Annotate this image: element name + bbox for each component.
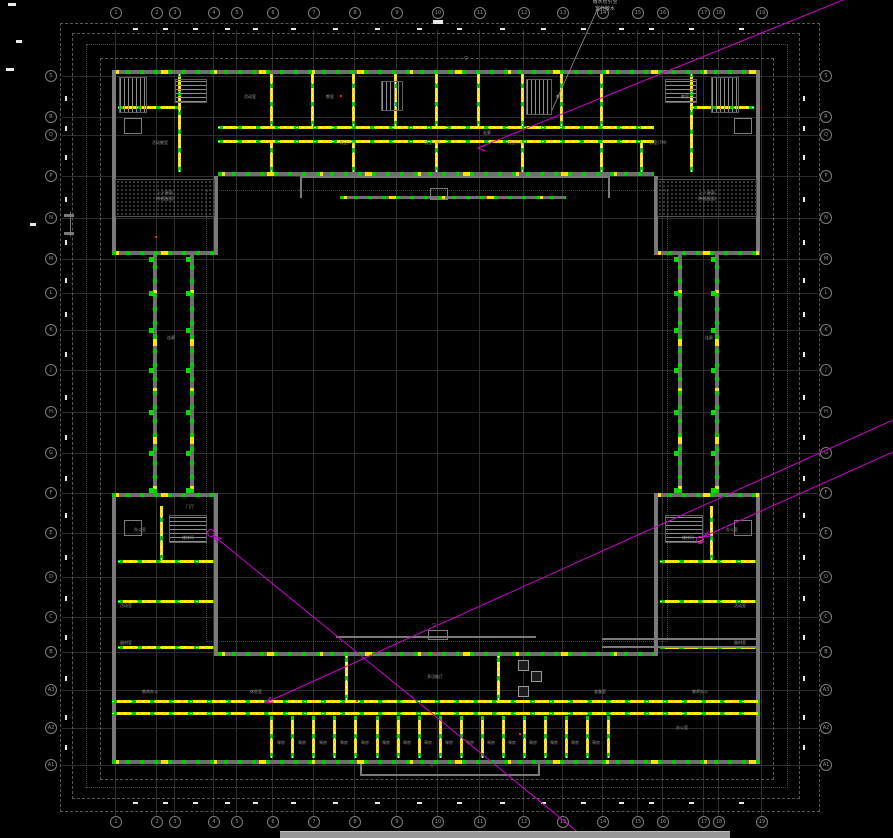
room-label: 连廊 [705,336,713,340]
room-label: 办公室 [726,528,738,532]
plan-element [608,176,610,198]
plan-element [300,176,302,198]
dim-tick [333,802,338,804]
plan-element [428,630,448,640]
plan-element [312,716,315,758]
plan-element [120,78,146,112]
grid-bubble-top: 8 [349,7,361,19]
dim-tick [649,28,654,30]
dim-tick [689,802,694,804]
dim-tick [500,802,505,804]
pipe-annotation: 雨水管引至 [592,0,617,5]
column-marker [186,291,191,296]
room-label: 琴房 [571,741,579,745]
marker-dot [519,733,521,735]
room-label: 活动室 [734,604,746,608]
grid-bubble-left: R [45,111,57,123]
room-label: 连廊 [167,336,175,340]
grid-bubble-bottom: 8 [349,816,361,828]
plan-element [600,143,603,172]
grid-bubble-right: N [820,212,832,224]
grid-bubble-top: 2 [151,7,163,19]
grid-bubble-bottom: 17 [698,816,710,828]
room-label: 琴房 [403,741,411,745]
dim-tick [803,435,805,440]
plan-element [660,560,756,563]
grid-bubble-left: Q [45,129,57,141]
dim-tick [689,28,694,30]
room-label: 教室 [326,95,334,99]
room-label: 琴房 [508,741,516,745]
room-label: 上人屋面 [157,191,173,195]
dim-tick [803,312,805,317]
dim-tick [803,555,805,560]
dim-tick [375,28,380,30]
room-label: 教室(7M) [507,141,524,145]
plan-element [521,74,524,126]
grid-bubble-right: H [820,406,832,418]
grid-bubble-right: Q [820,129,832,141]
plan-element [118,600,214,603]
grid-bubble-top: 9 [391,7,403,19]
column-marker [711,488,716,493]
plan-element [176,80,206,102]
dim-tick [291,28,296,30]
grid-bubble-left: K [45,324,57,336]
plan-element [333,716,336,758]
dim-tick [65,476,67,481]
level-mark: ▽ [430,764,434,769]
grid-bubble-right: J [820,364,832,376]
column-marker [149,488,154,493]
grid-bubble-bottom: 2 [151,816,163,828]
room-label: 休息室 [250,690,262,694]
plan-element [291,716,294,758]
plan-element [160,506,163,560]
plan-element [602,638,756,640]
column-marker [674,291,679,296]
dim-tick [803,352,805,357]
plan-element [531,671,542,682]
plan-element [64,214,74,217]
column-marker [711,368,716,373]
grid-bubble-top: 4 [208,7,220,19]
plan-element [300,176,610,178]
dim-tick [291,802,296,804]
plan-element [544,716,547,758]
dim-tick [333,28,338,30]
dim-tick [803,197,805,202]
room-label: 上人屋面 [699,191,715,195]
grid-bubble-top: 5 [231,7,243,19]
column-marker [149,257,154,262]
grid-bubble-right: G [820,447,832,459]
room-label: 琴房 [550,741,558,745]
plan-element [527,80,551,114]
plan-element [518,660,529,671]
dim-tick [65,513,67,518]
plan-element [112,251,218,255]
room-label: 楼梯间 [682,536,694,540]
dim-tick [581,802,586,804]
column-marker [186,257,191,262]
plan-element [523,716,526,758]
dim-tick [457,802,462,804]
plan-element [565,716,568,758]
column-marker [711,257,716,262]
plan-element [270,143,273,172]
dim-tick [619,28,624,30]
dim-tick [163,28,168,30]
plan-element [112,760,760,764]
grid-bubble-top: 15 [632,7,644,19]
column-marker [149,328,154,333]
dim-tick [500,28,505,30]
grid-bubble-bottom: 9 [391,816,403,828]
room-label: 走廊 [483,131,491,135]
plan-element [602,646,756,648]
level-mark: ▽ [662,561,666,566]
plan-element [654,493,760,497]
plan-element [382,82,402,110]
marker-dot [434,652,436,654]
plan-element [477,74,480,126]
dim-tick [65,278,67,283]
plan-element [654,251,760,255]
plan-element [218,652,654,656]
room-label: 琴房 [487,741,495,745]
dim-tick [803,715,805,720]
room-label: 琴房 [382,741,390,745]
grid-bubble-left: F [45,487,57,499]
grid-bubble-left: J [45,364,57,376]
plan-element [430,188,448,200]
grid-bubble-bottom: 10 [432,816,444,828]
plan-element [521,143,524,172]
pipe-annotation: 室外散水 [595,7,615,12]
grid-bubble-left: D [45,571,57,583]
column-marker [674,488,679,493]
dim-tick [65,635,67,640]
dim-tick [803,155,805,160]
plan-element [734,118,752,134]
plan-element [64,232,74,235]
grid-bubble-bottom: 16 [657,816,669,828]
room-label: 门厅 [186,505,194,509]
dim-tick [65,555,67,560]
plan-element [270,716,273,758]
dim-tick [803,96,805,101]
dim-tick [65,197,67,202]
dim-tick [803,476,805,481]
bottom-bar[interactable] [280,831,730,838]
column-marker [149,368,154,373]
room-label: 琴房 [319,741,327,745]
grid-bubble-bottom: 3 [169,816,181,828]
marker-dot [356,700,358,702]
grid-bubble-right: F [820,487,832,499]
grid-bubble-bottom: 14 [597,816,609,828]
room-label: 楼梯间 [182,536,194,540]
dim-tick [65,126,67,131]
level-mark: ▽ [432,624,436,629]
grid-bubble-right: M [820,253,832,265]
dim-tick [65,96,67,101]
plan-element [712,78,738,112]
plan-element [112,493,218,497]
plan-element [418,716,421,758]
room-label: 办公室 [676,726,688,730]
plan-element [218,126,654,129]
dim-tick [619,802,624,804]
dim-tick [163,802,168,804]
grid-bubble-top: 12 [518,7,530,19]
plan-element [112,700,760,703]
dim-tick [65,745,67,750]
column-marker [186,368,191,373]
cad-viewport[interactable]: 1122334455667788991010111112121313141415… [0,0,893,838]
column-marker [186,488,191,493]
level-mark: ▽ [464,57,468,62]
plan-element [345,656,348,700]
room-label: 琴房 [529,741,537,745]
dim-tick [65,435,67,440]
grid-bubble-top: 17 [698,7,710,19]
dim-tick [65,715,67,720]
grid-bubble-bottom: 15 [632,816,644,828]
room-label: 琴房 [361,741,369,745]
grid-bubble-left: A1 [45,759,57,771]
dim-tick [803,240,805,245]
grid-bubble-top: 10 [432,7,444,19]
grid-bubble-bottom: 5 [231,816,243,828]
plan-element [502,716,505,758]
plan-element [710,506,713,560]
grid-bubble-top: 11 [474,7,486,19]
column-marker [674,410,679,415]
room-label: 教室(7M) [649,141,666,145]
grid-bubble-left: H [45,406,57,418]
grid-bubble-bottom: 12 [518,816,530,828]
grid-bubble-bottom: 18 [713,816,725,828]
plan-element [518,686,529,697]
column-marker [711,451,716,456]
plan-element [607,716,610,758]
plan-element [118,560,214,563]
site-boundary [206,190,668,642]
grid-bubble-left: M [45,253,57,265]
room-label: 琴房 [298,741,306,745]
grid-bubble-left: C [45,611,57,623]
grid-bubble-left: N [45,212,57,224]
room-label: 琴房 [277,741,285,745]
column-marker [186,410,191,415]
column-marker [186,328,191,333]
dim-tick [803,126,805,131]
grid-bubble-left: A3 [45,684,57,696]
grid-bubble-bottom: 13 [557,816,569,828]
grid-bubble-right: S [820,70,832,82]
dim-tick [541,802,546,804]
column-marker [674,368,679,373]
grid-bubble-top: 19 [756,7,768,19]
grid-bubble-right: A2 [820,722,832,734]
dim-tick [193,802,198,804]
dim-tick [739,802,744,804]
dim-tick [417,802,422,804]
plan-element [118,646,214,649]
dim-tick [65,240,67,245]
dim-tick [541,28,546,30]
dim-tick [65,352,67,357]
grid-bubble-top: 13 [557,7,569,19]
plan-element [70,212,71,236]
grid-bubble-left: A2 [45,722,57,734]
plan-element [560,74,563,126]
dim-text [16,40,22,43]
plan-element [112,70,116,255]
plan-element [311,74,314,126]
column-marker [674,328,679,333]
dim-text [8,3,16,6]
dim-tick [65,312,67,317]
dim-tick [803,745,805,750]
room-label: (种植屋面) [155,197,174,201]
room-label: (种植屋面) [697,197,716,201]
grid-bubble-right: A3 [820,684,832,696]
room-label: 琴房 [445,741,453,745]
dim-tick [253,802,258,804]
room-label: 准备室 [594,690,606,694]
room-label: 活动室 [120,604,132,608]
dim-tick [253,28,258,30]
grid-bubble-top: 3 [169,7,181,19]
dim-text [6,68,14,71]
dim-tick [375,802,380,804]
grid-bubble-top: 16 [657,7,669,19]
grid-bubble-left: L [45,287,57,299]
column-marker [186,451,191,456]
column-marker [674,451,679,456]
marker-dot [340,95,342,97]
grid-bubble-right: C [820,611,832,623]
dim-tick [133,802,138,804]
plan-element [640,143,643,172]
dim-tick [803,596,805,601]
dim-tick [225,802,230,804]
column-marker [711,291,716,296]
plan-element [435,143,438,172]
room-label: 教师办公 [142,690,158,694]
dim-tick [739,28,744,30]
room-label: 琴房 [466,741,474,745]
dim-text [30,223,36,226]
room-label: 教师办公 [692,690,708,694]
room-label: 办公室 [134,528,146,532]
room-label: 多功能厅 [427,675,443,679]
marker-dot [700,540,702,542]
dim-tick [649,802,654,804]
dim-tick [457,28,462,30]
room-label: 琴房 [340,741,348,745]
dim-text [433,20,443,24]
room-label: 教室(7M) [424,141,441,145]
dim-tick [803,513,805,518]
dim-tick [417,28,422,30]
room-label: 教室(7M) [339,141,356,145]
room-label: 琴房 [592,741,600,745]
grid-bubble-left: P [45,170,57,182]
grid-bubble-right: K [820,324,832,336]
room-label: 教室 [556,95,564,99]
plan-element [481,716,484,758]
room-label: 器材室 [120,641,132,645]
grid-bubble-top: 7 [308,7,320,19]
dim-tick [65,155,67,160]
grid-bubble-top: 6 [267,7,279,19]
room-label: 活动室 [244,95,256,99]
dim-tick [803,635,805,640]
plan-element [460,716,463,758]
grid-bubble-right: D [820,571,832,583]
dim-tick [803,676,805,681]
plan-element [352,74,355,126]
grid-bubble-right: B [820,646,832,658]
dim-tick [133,28,138,30]
plan-element [360,774,540,776]
dim-tick [803,278,805,283]
plan-element [654,493,658,656]
grid-bubble-right: L [820,287,832,299]
plan-element [112,712,760,715]
dim-tick [65,596,67,601]
grid-bubble-bottom: 4 [208,816,220,828]
plan-element [270,74,273,126]
grid-bubble-bottom: 7 [308,816,320,828]
room-label: 器材室 [734,641,746,645]
grid-bubble-right: A1 [820,759,832,771]
grid-bubble-bottom: 11 [474,816,486,828]
column-marker [149,451,154,456]
plan-element [124,118,142,134]
grid-bubble-bottom: 19 [756,816,768,828]
room-label: 琴房 [424,741,432,745]
grid-bubble-right: E [820,527,832,539]
plan-element [112,493,116,764]
plan-element [214,493,218,656]
grid-bubble-left: E [45,527,57,539]
grid-bubble-bottom: 1 [110,816,122,828]
plan-element [214,176,218,255]
plan-element [497,656,500,700]
grid-bubble-left: G [45,447,57,459]
room-label: 教室 [681,95,689,99]
column-marker [711,410,716,415]
grid-bubble-top: 1 [110,7,122,19]
grid-bubble-bottom: 6 [267,816,279,828]
grid-bubble-left: B [45,646,57,658]
column-marker [711,328,716,333]
dim-tick [65,395,67,400]
dim-tick [581,28,586,30]
grid-bubble-left: S [45,70,57,82]
grid-bubble-right: R [820,111,832,123]
plan-element [586,716,589,758]
dim-tick [65,676,67,681]
plan-element [756,493,760,764]
plan-element [756,70,760,255]
marker-dot [155,236,157,238]
